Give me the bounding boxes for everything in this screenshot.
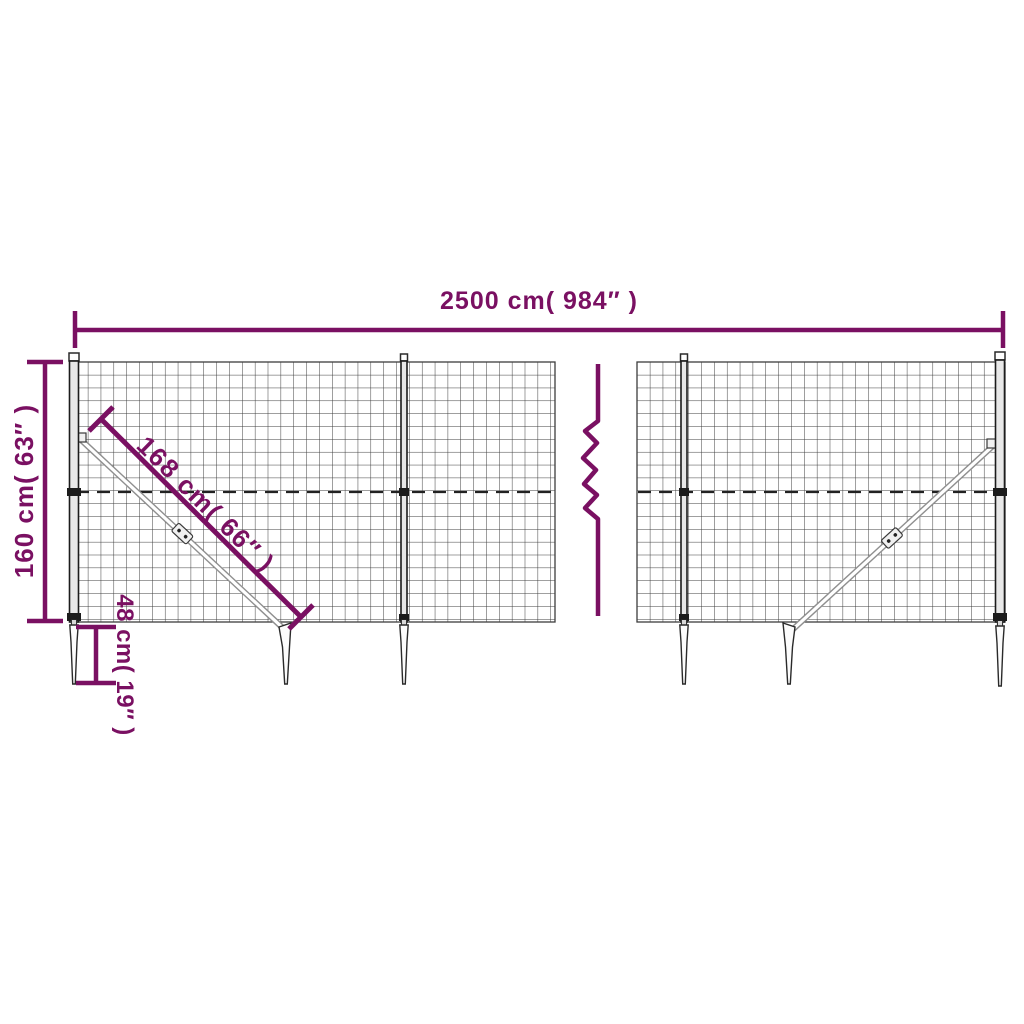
mid-post-left (399, 354, 409, 622)
ground-spike-mid-left (400, 620, 408, 685)
end-post-left (67, 353, 81, 622)
ground-spike-right-end (996, 621, 1004, 687)
spike-depth-label: 48 cm( 19″ ) (110, 505, 138, 825)
ground-anchor-spike-right (783, 623, 795, 684)
ground-spike-mid-right (680, 620, 688, 685)
ground-anchor-spike-left (279, 623, 291, 684)
break-symbol (583, 364, 598, 616)
mid-post-right (679, 354, 689, 622)
fence-drawing (0, 0, 1024, 1024)
product-dimension-diagram: 2500 cm( 984″ ) 160 cm( 63″ ) 168 cm( 66… (0, 0, 1024, 1024)
total-width-label: 2500 cm( 984″ ) (75, 287, 1003, 316)
end-post-right (993, 352, 1007, 622)
total-width-dimension (75, 311, 1003, 348)
height-label: 160 cm( 63″ ) (9, 331, 39, 651)
